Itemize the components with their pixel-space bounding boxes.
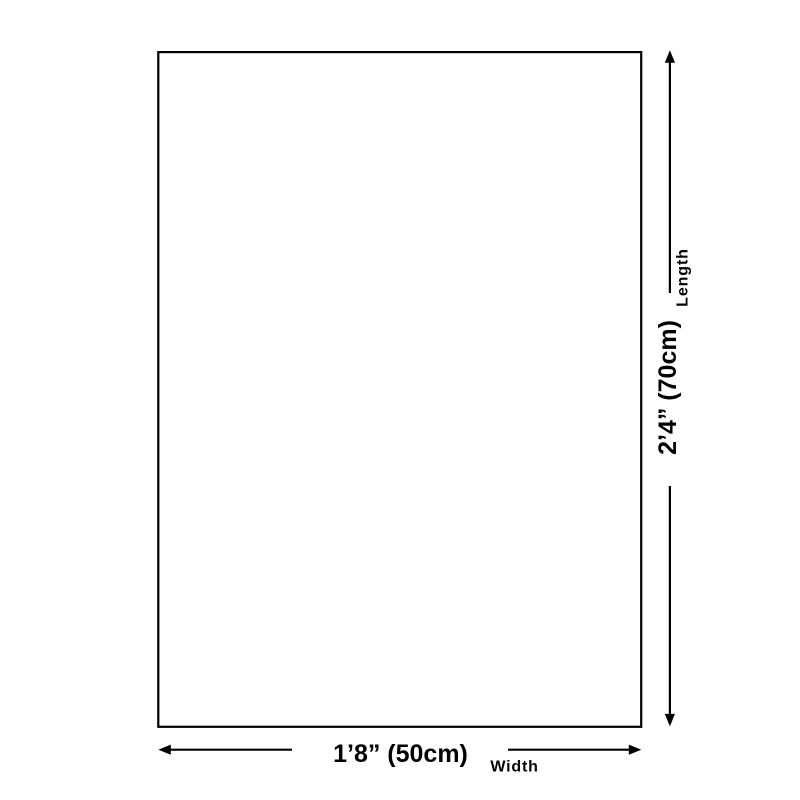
svg-text:Length: Length — [675, 248, 692, 307]
svg-text:2’4” (70cm): 2’4” (70cm) — [654, 320, 682, 455]
svg-text:1’8” (50cm): 1’8” (50cm) — [333, 740, 468, 768]
svg-text:Width: Width — [490, 759, 538, 776]
